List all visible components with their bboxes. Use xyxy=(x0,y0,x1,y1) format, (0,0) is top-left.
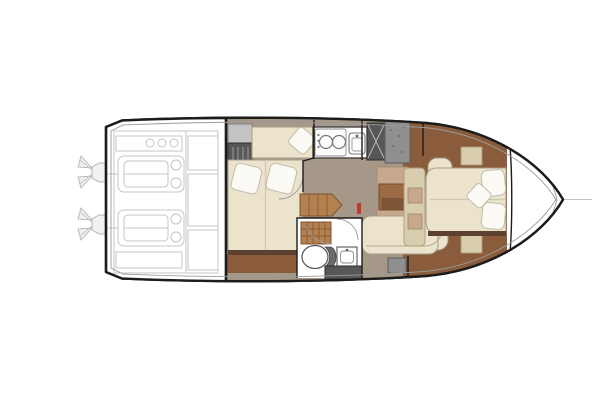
dinette-seat-aft xyxy=(377,167,408,186)
salon-locker xyxy=(388,258,406,273)
double-bed xyxy=(228,160,303,255)
washbasin xyxy=(337,247,357,267)
stove xyxy=(315,129,346,156)
bow-bench-cushion xyxy=(408,214,422,229)
sterndrive-starboard xyxy=(78,208,107,240)
bow-pillow xyxy=(481,202,507,230)
bow-bench xyxy=(404,168,425,246)
cabinet xyxy=(228,124,252,143)
bed-pillow xyxy=(230,162,263,195)
yacht-floorplan xyxy=(0,0,600,400)
side-table-port xyxy=(461,147,482,165)
bed-pillow xyxy=(265,162,298,195)
floorplan-svg xyxy=(0,0,600,400)
bow-deck xyxy=(507,118,577,284)
head-step xyxy=(325,266,362,279)
bed-foot-trim xyxy=(428,231,506,236)
fire-extinguisher xyxy=(357,203,361,214)
head xyxy=(297,218,362,279)
bow-bench-cushion xyxy=(408,188,422,203)
toilet xyxy=(302,246,336,269)
engine-room xyxy=(106,118,226,284)
sterndrive-port xyxy=(78,156,107,188)
aft-cabin-sole-strip xyxy=(226,255,297,273)
galley-hatch xyxy=(367,123,385,160)
side-table-starboard xyxy=(461,235,482,253)
interior xyxy=(106,118,577,284)
bed-foot-trim xyxy=(228,250,303,255)
shower-grate xyxy=(301,222,331,244)
island-bed xyxy=(426,168,506,236)
dinette-table xyxy=(379,184,406,210)
